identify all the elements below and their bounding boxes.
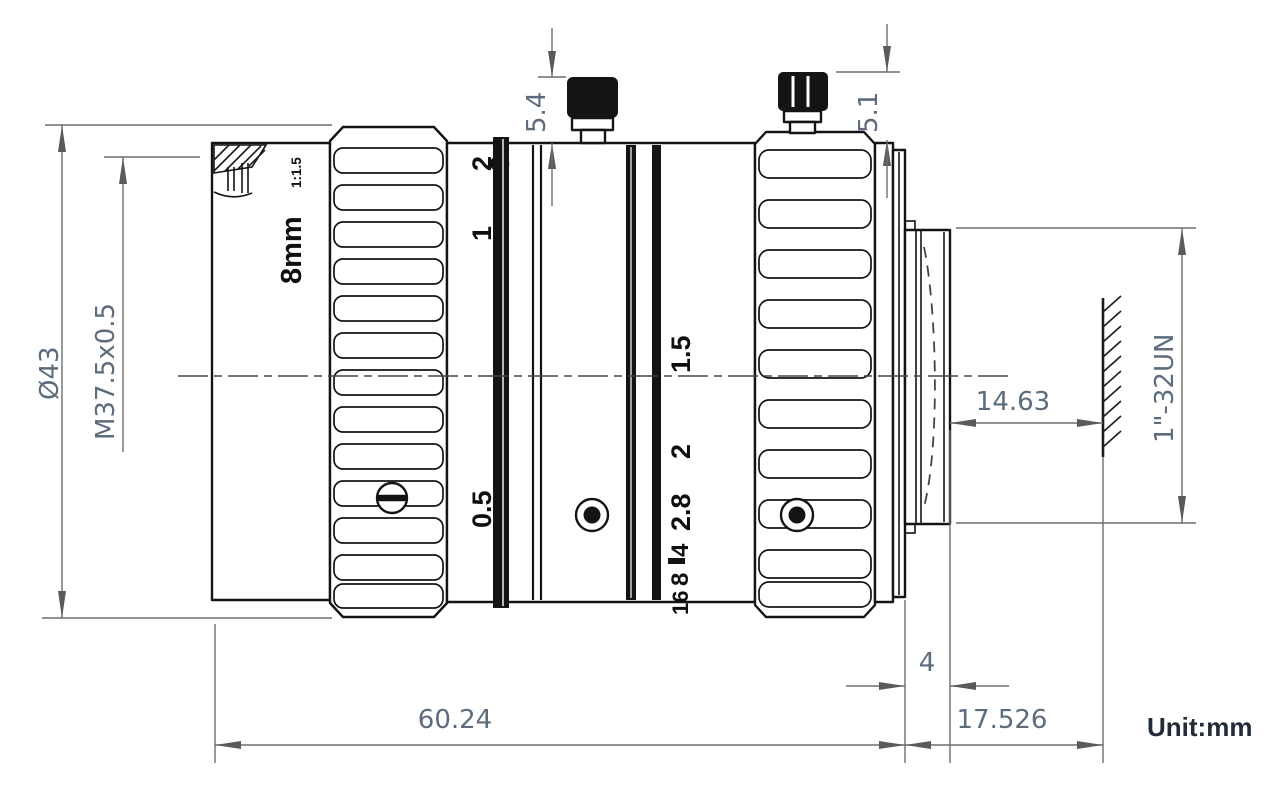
dim-mount-thread-label: 1"-32UN [1150, 334, 1180, 443]
dim-ffd-label: 14.63 [976, 387, 1050, 417]
front-thumb-screw [567, 77, 618, 143]
lens-technical-drawing-page: 2 3 1 0.5 1.5 2 2.8 4 8 16 [0, 0, 1280, 785]
rear-thumb-screw [778, 72, 828, 133]
socket-screw-body [576, 499, 608, 531]
focus-index-band [493, 137, 509, 608]
image-plane [1103, 296, 1121, 763]
aperture-16: 16 [668, 591, 693, 615]
socket-screw-ring [781, 499, 813, 531]
focus-scale-1: 1 [467, 226, 497, 241]
focus-scale-05: 0.5 [467, 490, 497, 528]
dim-front-screw-label: 5.4 [522, 92, 552, 133]
dim-filter-thread-label: M37.5x0.5 [91, 303, 121, 440]
dim-rear-screw-label: 5.1 [854, 92, 884, 133]
dim-lengths-bottom: 60.24 17.526 [215, 624, 1103, 763]
aperture-band-2 [652, 145, 661, 600]
aperture-4: 4 [667, 543, 694, 557]
dim-filter-thread: M37.5x0.5 [91, 157, 200, 452]
aperture-5-6-tick [668, 558, 685, 564]
aperture-1-5: 1.5 [666, 335, 696, 373]
focus-knurl-ring [330, 127, 447, 617]
aperture-knurl-ring [755, 132, 875, 617]
dim-body-length-label: 60.24 [418, 705, 492, 735]
lens-technical-drawing: 2 3 1 0.5 1.5 2 2.8 4 8 16 [0, 0, 1280, 785]
dim-outer-diameter-label: Ø43 [35, 346, 65, 400]
aperture-2: 2 [666, 444, 696, 459]
lens-body: 2 3 1 0.5 1.5 2 2.8 4 8 16 [212, 72, 950, 617]
unit-label: Unit:mm [1147, 712, 1252, 742]
aperture-8: 8 [667, 573, 694, 586]
aperture-2-8: 2.8 [666, 493, 696, 531]
dim-rear-length-label: 17.526 [957, 705, 1048, 735]
rear-ring [875, 143, 893, 602]
dim-flange-focal-distance: 14.63 [950, 387, 1103, 427]
aperture-ratio-marking: 1:1.5 [289, 157, 304, 188]
slotted-screw [377, 483, 407, 513]
front-barrel [212, 143, 330, 600]
mount-barrel [905, 221, 950, 533]
focal-length-marking: 8mm [276, 216, 308, 284]
dim-mount-length-label: 4 [919, 648, 936, 678]
